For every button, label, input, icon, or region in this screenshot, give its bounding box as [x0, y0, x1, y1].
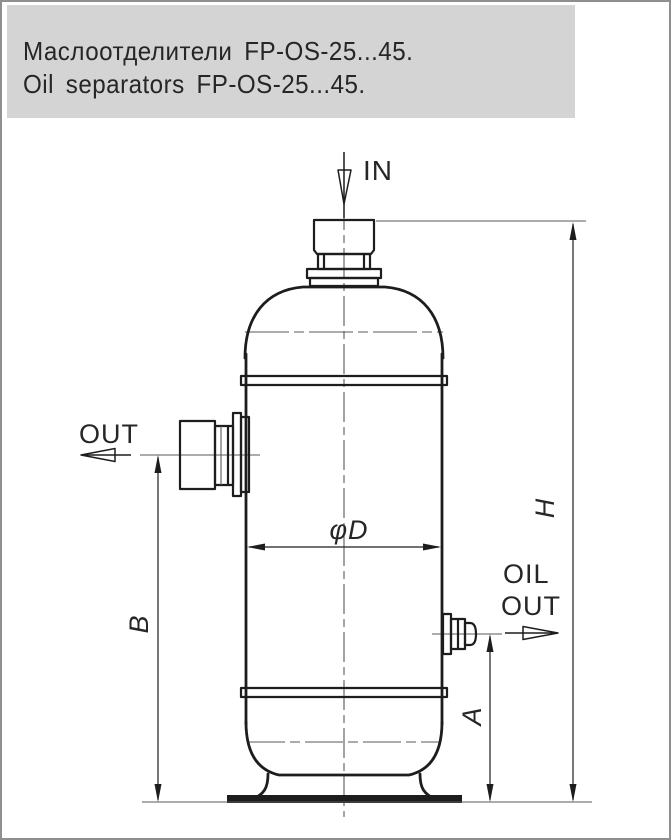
drawing-sheet: Маслоотделители FP-OS-25...45. Oil separ…	[0, 0, 671, 840]
outlet-label: OUT	[79, 419, 139, 449]
centerlines	[140, 152, 502, 817]
dimensions	[142, 221, 592, 802]
dim-h-label: H	[530, 498, 560, 519]
flow-arrows	[81, 152, 558, 640]
diameter-label: φD	[329, 515, 368, 545]
oil-outlet-label-line1: OIL	[503, 559, 550, 589]
dim-a-arrow-up	[487, 634, 494, 652]
oil-outlet-label-line2: OUT	[501, 591, 561, 621]
dim-a-label: A	[457, 706, 487, 727]
dim-b-arrow-up	[155, 455, 162, 473]
dim-b-label: B	[124, 614, 154, 633]
dim-a-arrow-down	[487, 784, 494, 802]
oil-separator-diagram: IN OUT OIL OUT φD B A H	[2, 2, 671, 840]
dim-b-arrow-down	[155, 784, 162, 802]
dim-h-arrow-up	[570, 222, 577, 240]
dim-d-arrow-left	[247, 544, 265, 551]
dim-d-arrow-right	[423, 544, 441, 551]
dim-h-arrow-down	[570, 784, 577, 802]
inlet-label: IN	[363, 155, 393, 186]
